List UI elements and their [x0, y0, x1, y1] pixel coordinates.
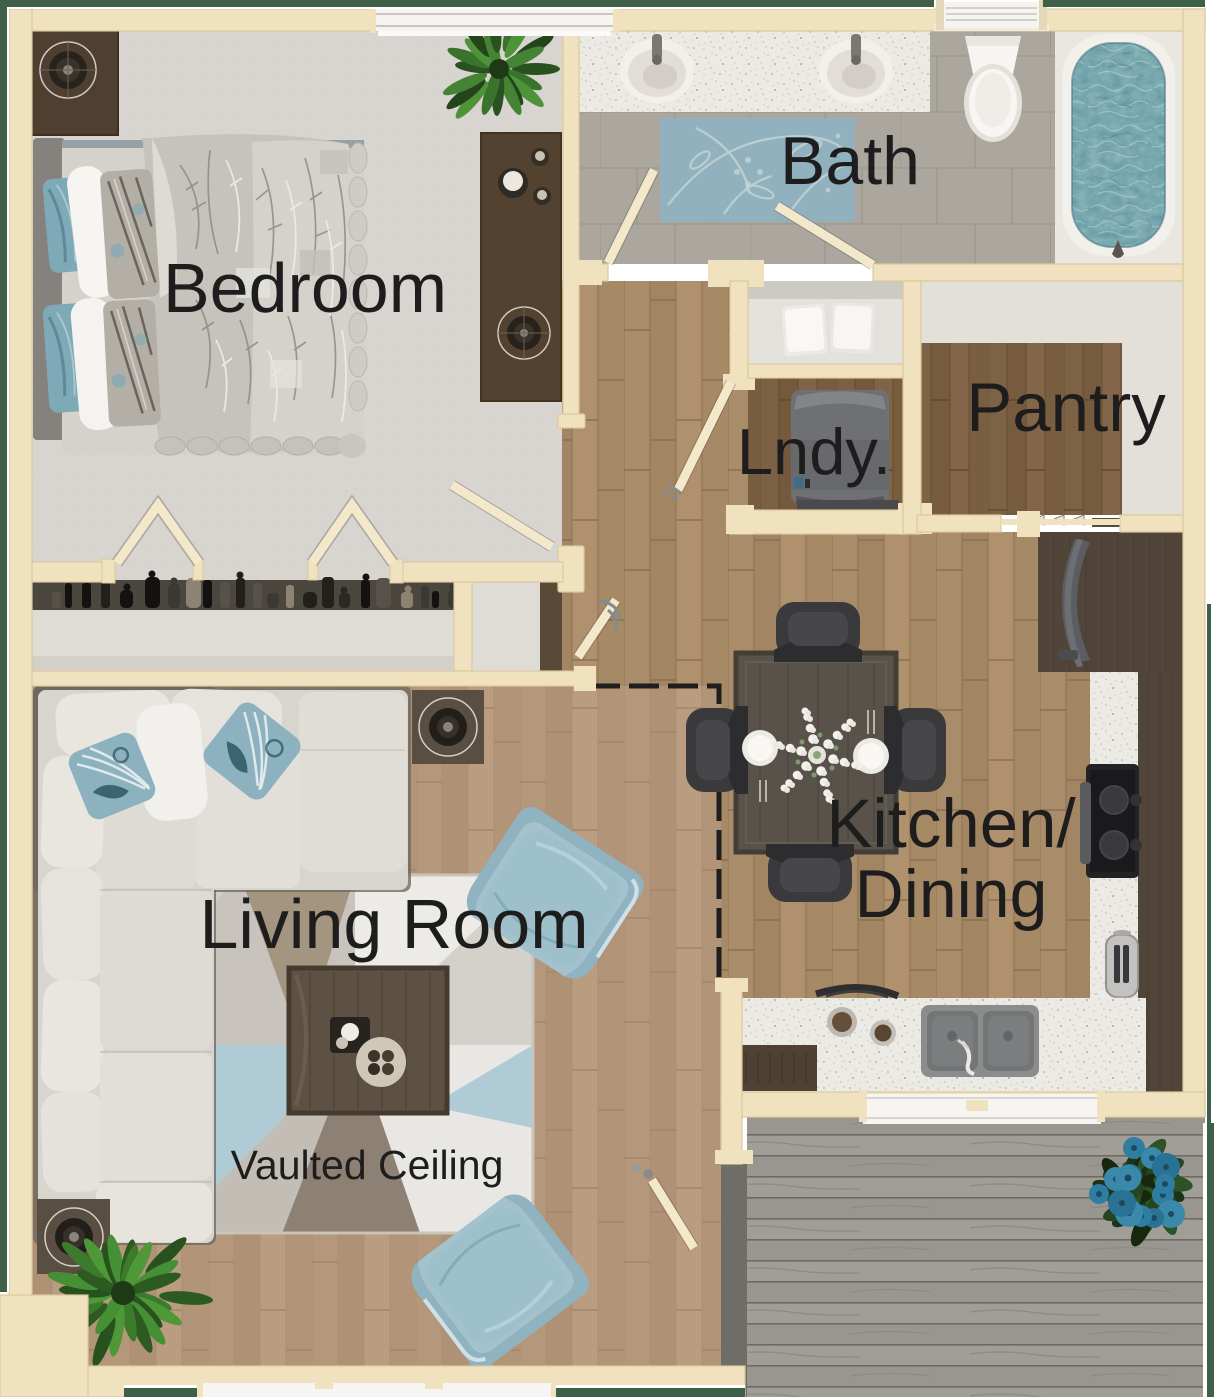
svg-text:Living Room: Living Room: [199, 885, 588, 963]
svg-text:Kitchen/: Kitchen/: [826, 785, 1076, 862]
svg-text:Lndy.: Lndy.: [737, 415, 891, 488]
svg-text:Dining: Dining: [855, 856, 1048, 932]
svg-text:Pantry: Pantry: [966, 369, 1166, 446]
svg-text:Vaulted Ceiling: Vaulted Ceiling: [231, 1142, 504, 1188]
svg-text:Bath: Bath: [780, 123, 920, 199]
svg-text:Bedroom: Bedroom: [163, 249, 447, 327]
